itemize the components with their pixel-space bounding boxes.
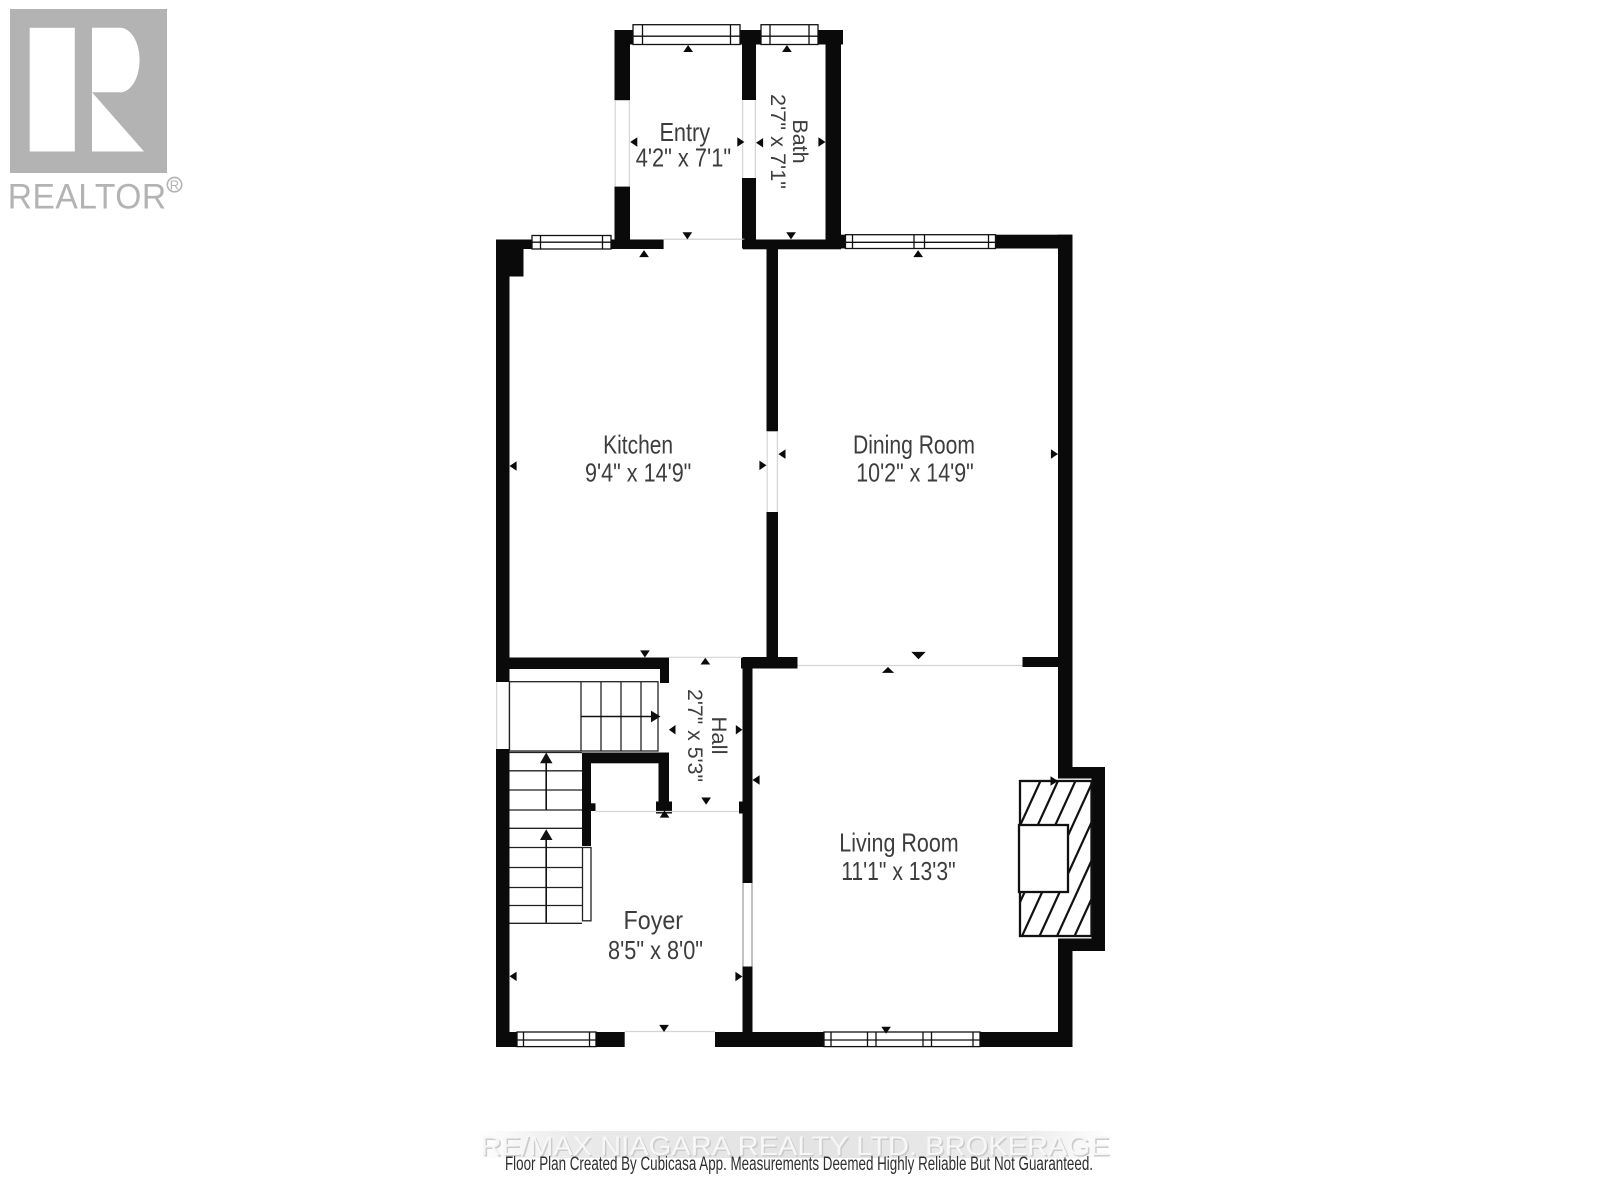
svg-text:2'7" x 7'1": 2'7" x 7'1": [766, 94, 791, 189]
svg-text:9'4" x 14'9": 9'4" x 14'9": [585, 459, 691, 487]
svg-text:Foyer: Foyer: [624, 907, 684, 935]
svg-text:Floor Plan Created By Cubicasa: Floor Plan Created By Cubicasa App. Meas…: [505, 1153, 1093, 1175]
svg-text:10'2" x 14'9": 10'2" x 14'9": [856, 459, 974, 487]
svg-text:4'2" x 7'1": 4'2" x 7'1": [636, 144, 731, 172]
svg-text:Kitchen: Kitchen: [603, 432, 673, 460]
svg-text:11'1" x 13'3": 11'1" x 13'3": [841, 858, 955, 886]
svg-text:R: R: [170, 177, 179, 192]
svg-text:Living Room: Living Room: [839, 830, 958, 858]
svg-text:Dining Room: Dining Room: [853, 432, 975, 460]
svg-text:Hall: Hall: [707, 717, 732, 755]
svg-text:2'7" x 5'3": 2'7" x 5'3": [683, 689, 708, 782]
svg-text:Entry: Entry: [659, 119, 710, 147]
svg-text:REALTOR: REALTOR: [8, 177, 167, 217]
svg-text:8'5" x 8'0": 8'5" x 8'0": [608, 937, 703, 965]
